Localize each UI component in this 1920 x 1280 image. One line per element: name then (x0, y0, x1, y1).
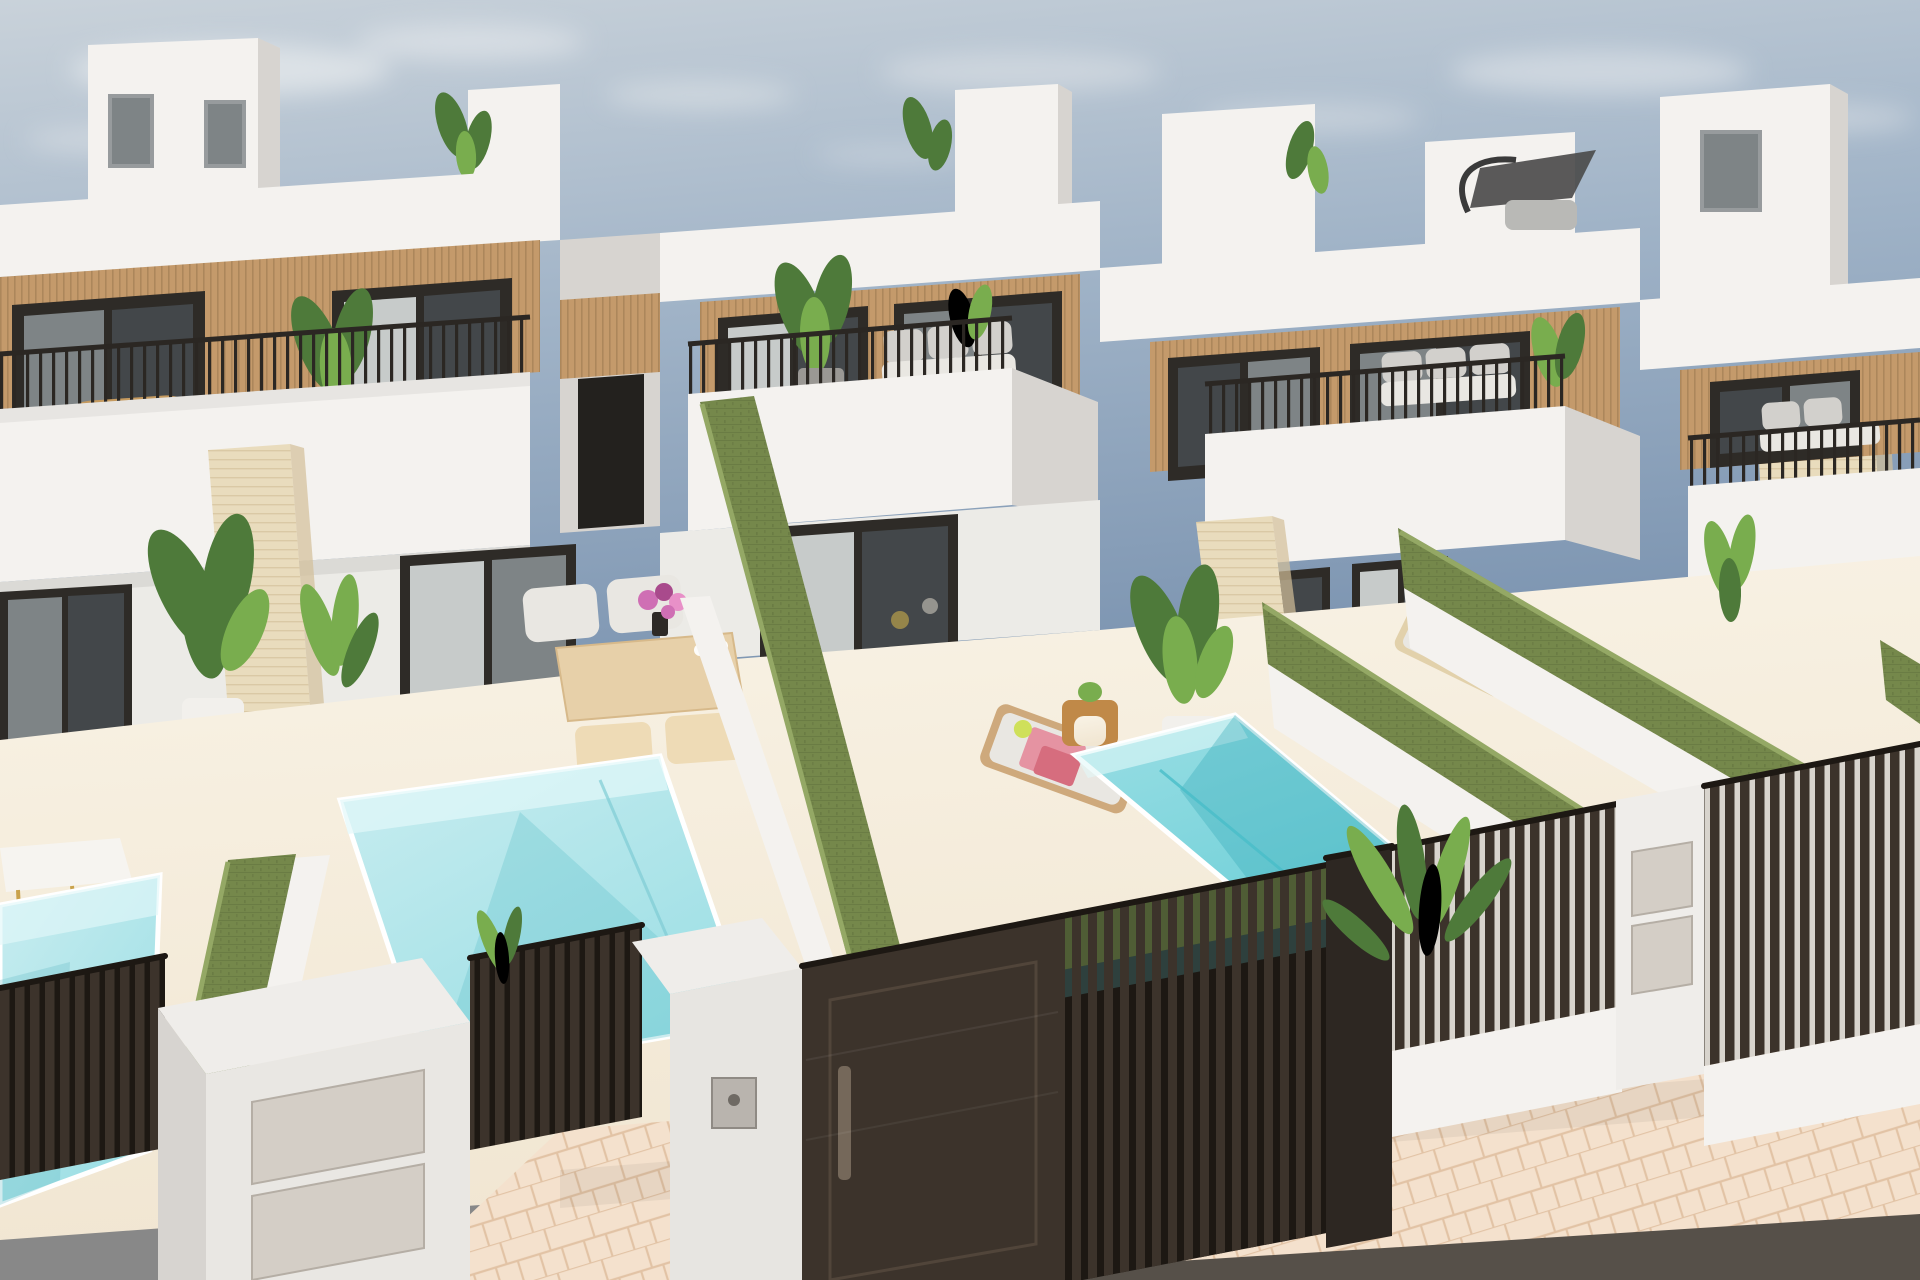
gate-handle[interactable] (838, 1066, 851, 1180)
letterbox-wall (1616, 784, 1704, 1090)
connector-recess (560, 233, 660, 533)
letterbox-panel (1632, 916, 1692, 994)
scene-canvas (0, 0, 1920, 1280)
gate-solid[interactable] (802, 916, 1062, 1280)
alley-doorway (578, 374, 644, 529)
gate-slatted[interactable] (1062, 864, 1332, 1280)
architectural-render (0, 0, 1920, 1280)
fence (1704, 744, 1920, 1146)
roof-window (1702, 132, 1760, 210)
fence (1392, 803, 1622, 1137)
sliding-door (0, 584, 132, 752)
roof-window (110, 96, 152, 166)
roof-window (206, 102, 244, 166)
roof-box (1660, 84, 1848, 313)
letterbox-pillar (158, 958, 470, 1280)
roof-box (88, 38, 280, 209)
fence (0, 956, 165, 1180)
letterbox-panel (1632, 842, 1692, 916)
